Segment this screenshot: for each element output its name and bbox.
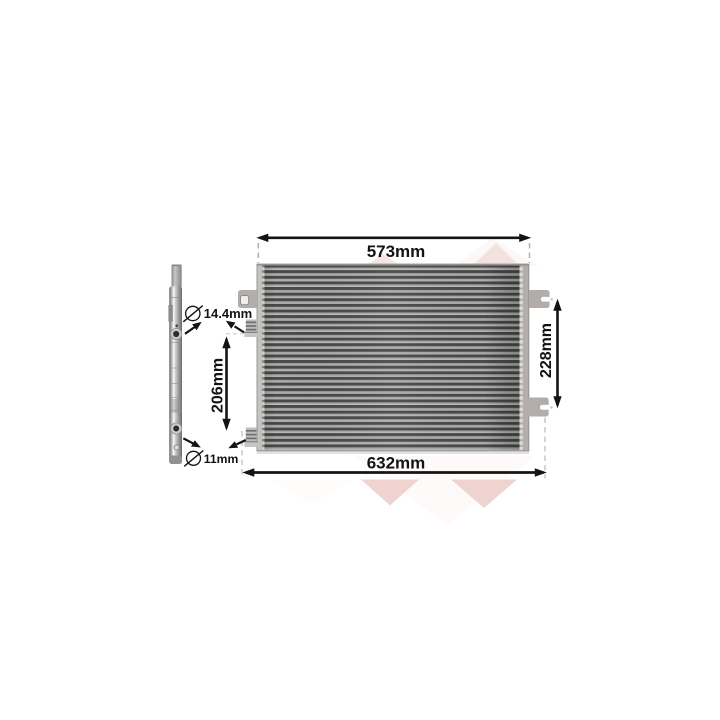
svg-text:573mm: 573mm: [367, 242, 426, 261]
svg-text:632mm: 632mm: [367, 454, 426, 473]
svg-text:11mm: 11mm: [204, 452, 239, 466]
svg-text:228mm: 228mm: [538, 323, 555, 378]
svg-text:206mm: 206mm: [210, 358, 227, 413]
svg-text:14.4mm: 14.4mm: [204, 306, 252, 321]
